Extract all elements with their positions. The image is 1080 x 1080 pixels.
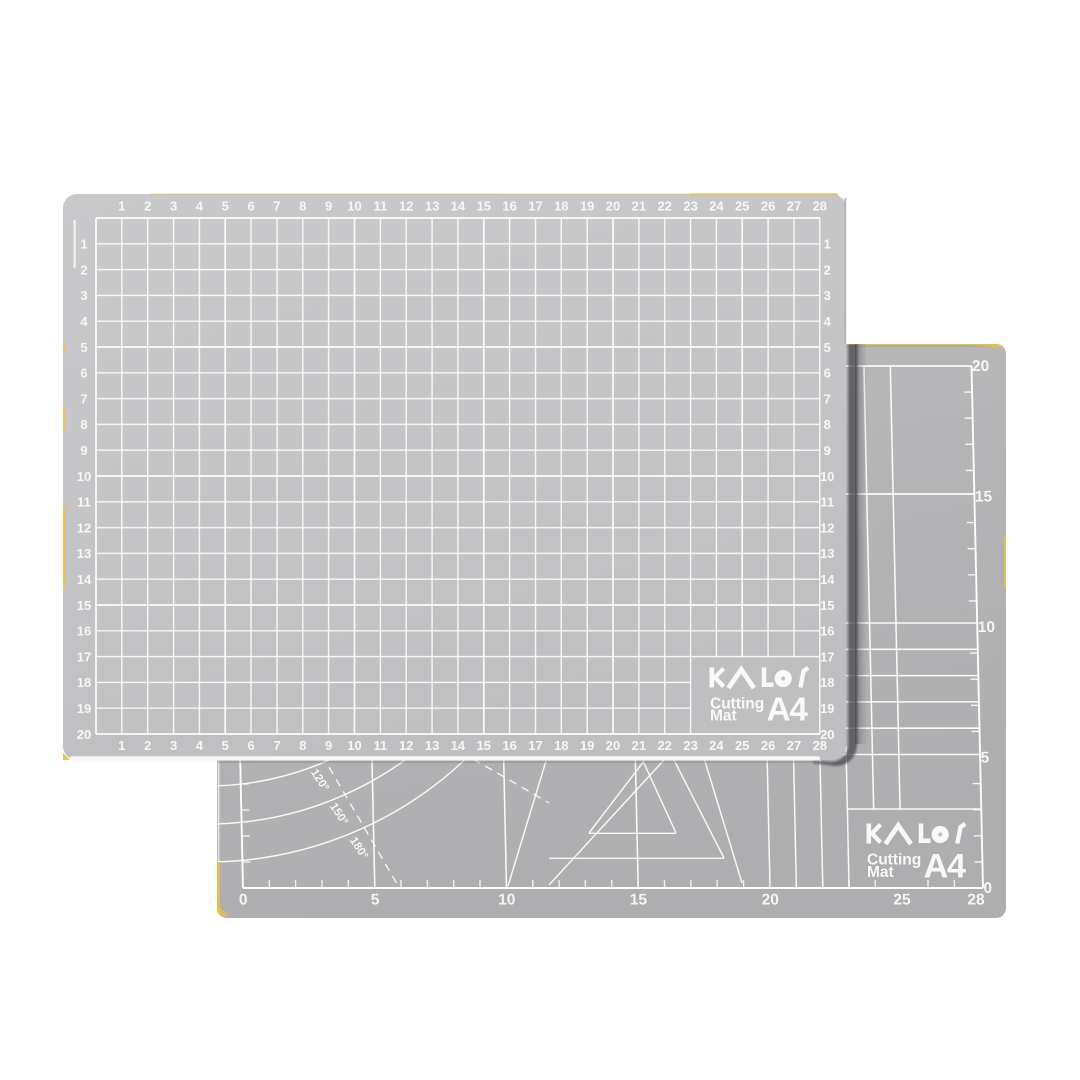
svg-text:A4: A4 xyxy=(924,848,966,886)
svg-text:20: 20 xyxy=(77,727,91,742)
svg-text:10: 10 xyxy=(347,738,361,753)
svg-text:17: 17 xyxy=(77,649,91,664)
svg-text:17: 17 xyxy=(528,738,542,753)
svg-text:13: 13 xyxy=(77,546,91,561)
svg-text:19: 19 xyxy=(580,738,594,753)
svg-text:13: 13 xyxy=(425,198,439,213)
svg-text:0: 0 xyxy=(239,892,248,909)
svg-text:26: 26 xyxy=(761,738,775,753)
svg-text:20: 20 xyxy=(606,198,620,213)
svg-text:3: 3 xyxy=(170,198,177,213)
svg-text:2: 2 xyxy=(144,738,151,753)
svg-text:15: 15 xyxy=(975,489,993,506)
svg-text:18: 18 xyxy=(554,198,568,213)
svg-text:19: 19 xyxy=(820,701,834,716)
svg-text:11: 11 xyxy=(77,495,91,510)
svg-text:25: 25 xyxy=(735,738,749,753)
svg-text:15: 15 xyxy=(477,738,491,753)
svg-text:14: 14 xyxy=(77,572,92,587)
svg-text:21: 21 xyxy=(632,198,646,213)
svg-text:9: 9 xyxy=(325,738,332,753)
svg-text:15: 15 xyxy=(820,598,834,613)
svg-text:16: 16 xyxy=(502,198,516,213)
svg-text:9: 9 xyxy=(80,443,87,458)
svg-text:1: 1 xyxy=(118,198,125,213)
svg-text:23: 23 xyxy=(683,198,697,213)
svg-text:6: 6 xyxy=(247,738,254,753)
svg-text:1: 1 xyxy=(824,237,831,252)
svg-text:20: 20 xyxy=(761,892,779,909)
svg-text:11: 11 xyxy=(374,198,388,213)
svg-text:14: 14 xyxy=(451,738,466,753)
svg-text:10: 10 xyxy=(498,892,516,909)
svg-text:10: 10 xyxy=(978,619,996,636)
svg-text:11: 11 xyxy=(374,738,388,753)
svg-text:5: 5 xyxy=(824,340,831,355)
svg-text:15: 15 xyxy=(477,198,491,213)
svg-text:7: 7 xyxy=(80,391,87,406)
svg-text:18: 18 xyxy=(77,675,91,690)
svg-text:6: 6 xyxy=(80,366,87,381)
svg-text:22: 22 xyxy=(657,738,671,753)
svg-text:A4: A4 xyxy=(767,692,809,729)
svg-text:12: 12 xyxy=(77,520,91,535)
svg-text:25: 25 xyxy=(735,198,749,213)
svg-text:8: 8 xyxy=(80,417,87,432)
svg-text:15: 15 xyxy=(630,892,648,909)
svg-text:1: 1 xyxy=(118,738,125,753)
svg-text:13: 13 xyxy=(820,546,834,561)
svg-text:14: 14 xyxy=(451,198,466,213)
svg-text:7: 7 xyxy=(824,391,831,406)
svg-text:25: 25 xyxy=(893,892,911,909)
svg-text:6: 6 xyxy=(824,366,831,381)
svg-text:6: 6 xyxy=(247,198,254,213)
svg-text:20: 20 xyxy=(820,727,834,742)
svg-text:2: 2 xyxy=(824,262,831,277)
svg-text:19: 19 xyxy=(77,701,91,716)
svg-text:5: 5 xyxy=(80,340,87,355)
svg-text:14: 14 xyxy=(820,572,835,587)
svg-text:27: 27 xyxy=(787,198,801,213)
svg-text:5: 5 xyxy=(980,750,989,767)
svg-text:17: 17 xyxy=(820,649,834,664)
svg-text:Mat: Mat xyxy=(710,708,737,725)
svg-text:4: 4 xyxy=(196,738,204,753)
svg-text:9: 9 xyxy=(824,443,831,458)
svg-text:4: 4 xyxy=(824,314,832,329)
svg-text:22: 22 xyxy=(657,198,671,213)
svg-text:Mat: Mat xyxy=(867,864,894,881)
svg-text:7: 7 xyxy=(273,198,280,213)
svg-text:11: 11 xyxy=(820,495,834,510)
svg-text:3: 3 xyxy=(170,738,177,753)
svg-text:1: 1 xyxy=(80,237,87,252)
svg-text:28: 28 xyxy=(967,892,985,909)
svg-text:5: 5 xyxy=(371,892,380,909)
svg-text:7: 7 xyxy=(273,738,280,753)
svg-text:3: 3 xyxy=(80,288,87,303)
svg-text:13: 13 xyxy=(425,738,439,753)
svg-text:18: 18 xyxy=(820,675,834,690)
svg-text:24: 24 xyxy=(709,738,724,753)
svg-text:21: 21 xyxy=(632,738,646,753)
svg-text:10: 10 xyxy=(347,198,361,213)
svg-text:19: 19 xyxy=(580,198,594,213)
svg-text:2: 2 xyxy=(80,262,87,277)
svg-text:10: 10 xyxy=(77,469,91,484)
svg-text:10: 10 xyxy=(820,469,834,484)
svg-text:23: 23 xyxy=(683,738,697,753)
svg-text:16: 16 xyxy=(77,624,91,639)
svg-text:27: 27 xyxy=(787,738,801,753)
svg-text:12: 12 xyxy=(399,198,413,213)
svg-text:2: 2 xyxy=(144,198,151,213)
svg-text:0: 0 xyxy=(983,880,992,897)
svg-text:8: 8 xyxy=(299,198,306,213)
svg-text:5: 5 xyxy=(222,198,229,213)
svg-text:3: 3 xyxy=(824,288,831,303)
svg-text:20: 20 xyxy=(606,738,620,753)
svg-text:12: 12 xyxy=(820,520,834,535)
svg-text:28: 28 xyxy=(813,198,827,213)
svg-text:26: 26 xyxy=(761,198,775,213)
svg-text:18: 18 xyxy=(554,738,568,753)
svg-text:20: 20 xyxy=(972,358,990,375)
svg-text:8: 8 xyxy=(824,417,831,432)
svg-text:24: 24 xyxy=(709,198,724,213)
svg-text:9: 9 xyxy=(325,198,332,213)
svg-text:4: 4 xyxy=(80,314,88,329)
svg-text:5: 5 xyxy=(222,738,229,753)
svg-text:12: 12 xyxy=(399,738,413,753)
svg-text:8: 8 xyxy=(299,738,306,753)
svg-text:16: 16 xyxy=(820,624,834,639)
svg-text:15: 15 xyxy=(77,598,91,613)
svg-text:16: 16 xyxy=(502,738,516,753)
svg-text:4: 4 xyxy=(196,198,204,213)
svg-text:17: 17 xyxy=(528,198,542,213)
